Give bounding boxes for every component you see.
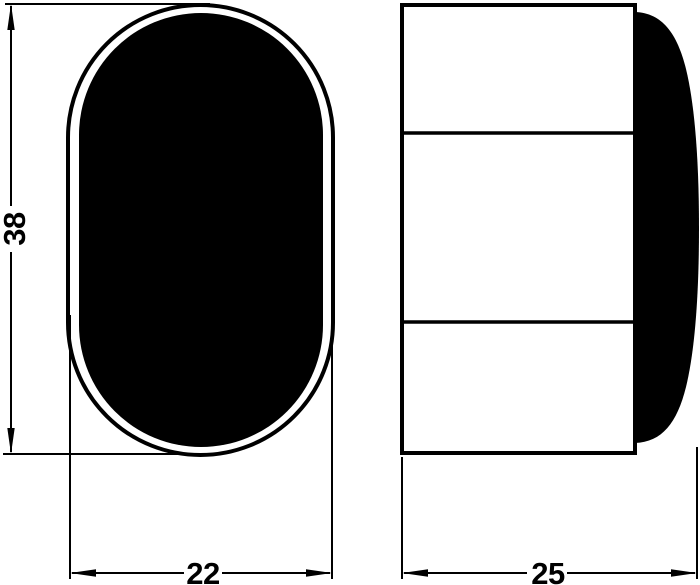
front-view xyxy=(68,5,333,455)
arrowhead-left-icon xyxy=(70,569,96,576)
arrowhead-left-icon xyxy=(402,569,428,576)
technical-drawing: 38 22 25 xyxy=(0,0,700,585)
side-view xyxy=(402,5,699,453)
technical-drawing-canvas: 38 22 25 xyxy=(0,0,700,585)
dimension-height-label: 38 xyxy=(0,212,32,246)
arrowhead-right-icon xyxy=(306,569,332,576)
dimension-depth: 25 xyxy=(402,447,697,585)
side-view-bumper xyxy=(635,12,699,443)
arrowhead-up-icon xyxy=(7,4,14,30)
dimension-depth-label: 25 xyxy=(531,556,565,585)
front-view-face xyxy=(79,13,323,447)
dimension-width-label: 22 xyxy=(186,556,219,585)
side-view-base xyxy=(402,5,635,453)
arrowhead-right-icon xyxy=(671,569,697,576)
arrowhead-down-icon xyxy=(7,428,14,454)
